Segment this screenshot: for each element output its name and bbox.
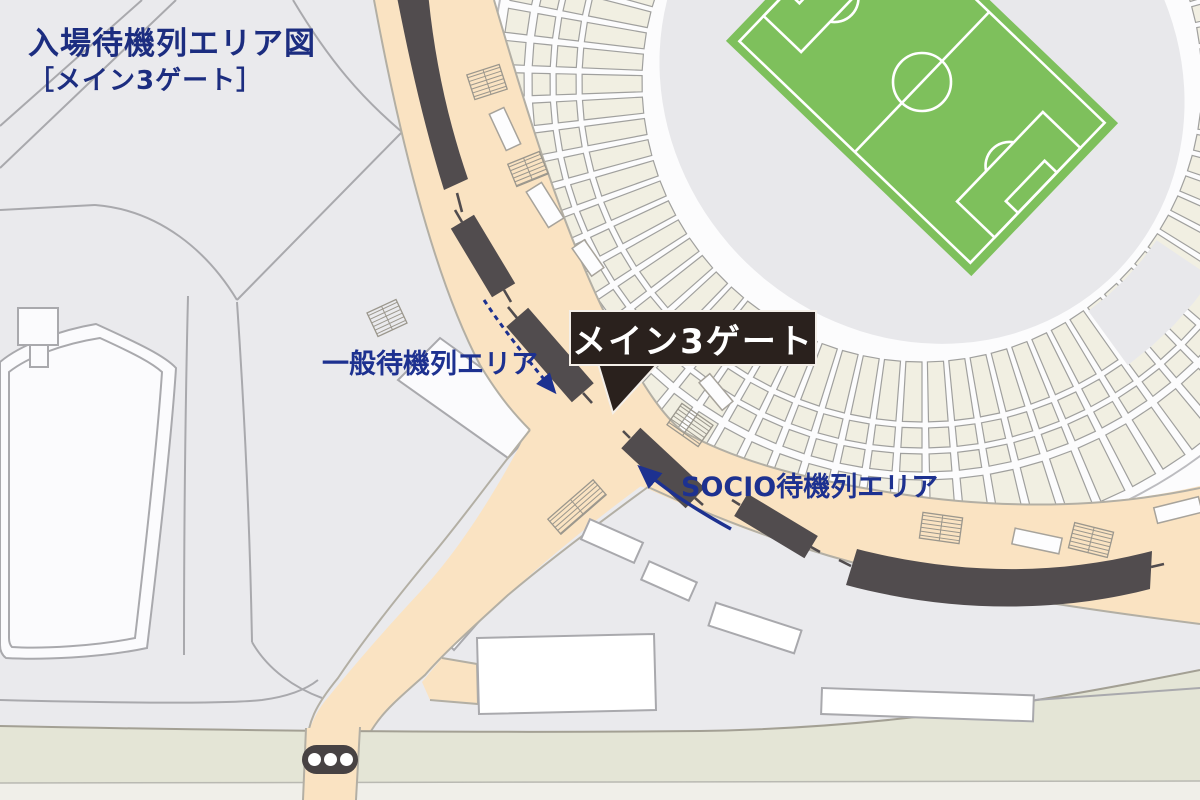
page-title: 入場待機列エリア図 [28,18,316,63]
stair-structure [367,299,407,336]
general-queue-label: 一般待機列エリア [322,342,538,381]
map-graphic [0,0,1200,800]
gate-callout: メイン3ゲート [569,310,817,366]
traffic-light-dot [324,753,337,766]
traffic-light-dot [340,753,353,766]
socio-queue-label: SOCIO待機列エリア [681,465,938,504]
athletic-field [0,308,176,659]
stadium-queue-map: 入場待機列エリア図 ［メイン3ゲート］ 一般待機列エリア SOCIO待機列エリア… [0,0,1200,800]
traffic-light-icon [302,745,358,774]
traffic-light-dot [308,753,321,766]
page-subtitle: ［メイン3ゲート］ [28,60,263,97]
